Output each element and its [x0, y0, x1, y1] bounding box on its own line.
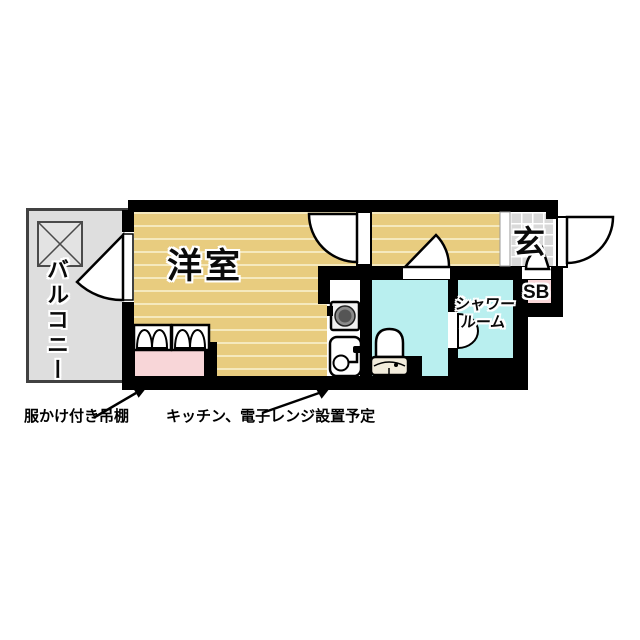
entrance-step — [500, 212, 510, 266]
wall-top — [128, 200, 558, 212]
shower-room-label: シャワー ルーム — [446, 296, 522, 332]
closet-arrow-head — [133, 385, 148, 397]
entrance-label: 玄 — [513, 217, 545, 263]
room-door-leaf — [357, 212, 371, 265]
floorplan-structure — [0, 0, 640, 640]
closet-annotation: 服かけ付き吊棚 — [24, 405, 129, 426]
hanging-clothes-icon — [134, 325, 209, 350]
kitchen-annotation: キッチン、電子レンジ設置予定 — [166, 405, 375, 426]
toilet-doorway — [403, 267, 450, 279]
stove-burner-icon — [327, 302, 359, 330]
shower-room-label-line2: ルーム — [446, 314, 520, 332]
shower-room-label-line1: シャワー — [448, 296, 522, 314]
balcony-label: バルコニー — [40, 258, 72, 383]
main-room-label: 洋室 — [167, 238, 243, 289]
hanging-shelf — [133, 349, 210, 378]
sink-faucet-icon — [330, 337, 363, 376]
balcony-door-swing — [77, 235, 123, 300]
floorplan-canvas: 洋室 バルコニー 玄 シャワー ルーム SB 服かけ付き吊棚 キッチン、電子レン… — [0, 0, 640, 640]
wall-shower-bottom — [448, 358, 528, 390]
front-door-leaf — [557, 217, 567, 267]
room-door-swing — [309, 214, 357, 262]
toilet-door-swing — [405, 235, 449, 267]
toilet-icon — [371, 329, 408, 375]
kitchen-arrow-head — [316, 386, 331, 398]
shoe-box-label: SB — [523, 282, 549, 304]
wall-kitchen-stub — [318, 266, 330, 304]
front-door-swing — [567, 217, 613, 263]
closet-block — [133, 325, 217, 378]
balcony-door-leaf — [123, 234, 133, 300]
